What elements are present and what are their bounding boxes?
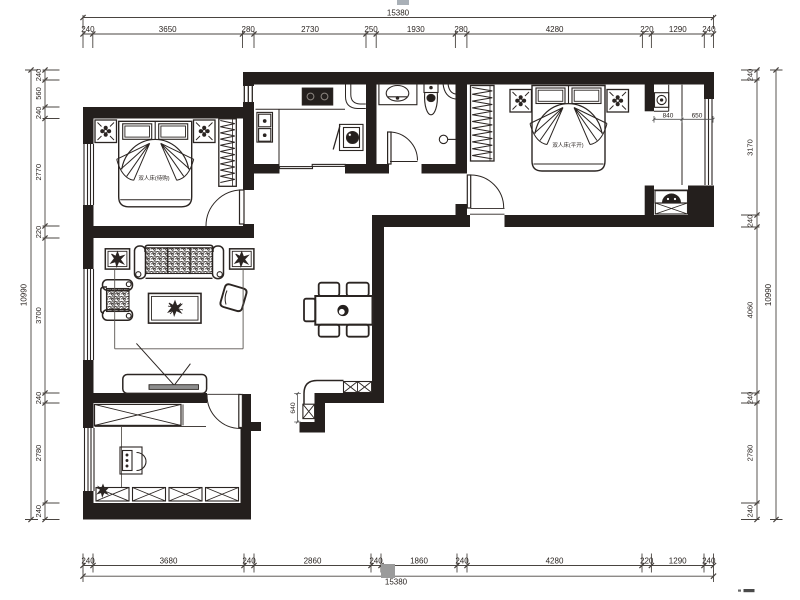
svg-text:4060: 4060 — [746, 302, 755, 319]
svg-text:240: 240 — [81, 25, 95, 34]
svg-text:10990: 10990 — [764, 283, 773, 306]
svg-text:240: 240 — [746, 505, 755, 518]
svg-text:2860: 2860 — [304, 557, 322, 566]
svg-text:3700: 3700 — [34, 307, 43, 324]
svg-text:4280: 4280 — [546, 25, 564, 34]
svg-text:280: 280 — [242, 25, 256, 34]
svg-text:840: 840 — [663, 113, 674, 120]
svg-text:2730: 2730 — [301, 25, 319, 34]
svg-text:280: 280 — [454, 25, 468, 34]
svg-text:15380: 15380 — [385, 578, 408, 587]
svg-text:650: 650 — [692, 113, 703, 120]
svg-text:240: 240 — [242, 557, 256, 566]
svg-text:3680: 3680 — [160, 557, 178, 566]
svg-text:1290: 1290 — [669, 557, 687, 566]
svg-text:2770: 2770 — [34, 164, 43, 181]
svg-text:240: 240 — [702, 25, 716, 34]
svg-text:240: 240 — [746, 392, 755, 405]
svg-text:3650: 3650 — [159, 25, 177, 34]
svg-text:560: 560 — [34, 87, 43, 100]
svg-text:4280: 4280 — [546, 557, 564, 566]
svg-text:2780: 2780 — [34, 445, 43, 462]
svg-text:2780: 2780 — [746, 445, 755, 462]
svg-text:1860: 1860 — [410, 557, 428, 566]
svg-text:双人床(平开): 双人床(平开) — [552, 141, 583, 149]
svg-text:3170: 3170 — [746, 139, 755, 156]
svg-text:220: 220 — [640, 557, 654, 566]
svg-text:240: 240 — [34, 505, 43, 518]
svg-text:640: 640 — [290, 402, 297, 414]
svg-text:10990: 10990 — [20, 283, 29, 306]
svg-text:240: 240 — [81, 557, 95, 566]
svg-text:240: 240 — [34, 107, 43, 120]
svg-text:250: 250 — [364, 25, 378, 34]
svg-text:240: 240 — [746, 69, 755, 82]
svg-text:240: 240 — [702, 557, 716, 566]
svg-text:双人床(待购): 双人床(待购) — [138, 174, 169, 182]
svg-text:15380: 15380 — [387, 9, 410, 18]
svg-text:1290: 1290 — [669, 25, 687, 34]
svg-text:1930: 1930 — [407, 25, 425, 34]
svg-text:220: 220 — [640, 25, 654, 34]
svg-text:240: 240 — [34, 392, 43, 405]
svg-text:240: 240 — [455, 557, 469, 566]
svg-text:240: 240 — [746, 215, 755, 228]
svg-text:240: 240 — [34, 69, 43, 82]
svg-text:220: 220 — [34, 226, 43, 239]
